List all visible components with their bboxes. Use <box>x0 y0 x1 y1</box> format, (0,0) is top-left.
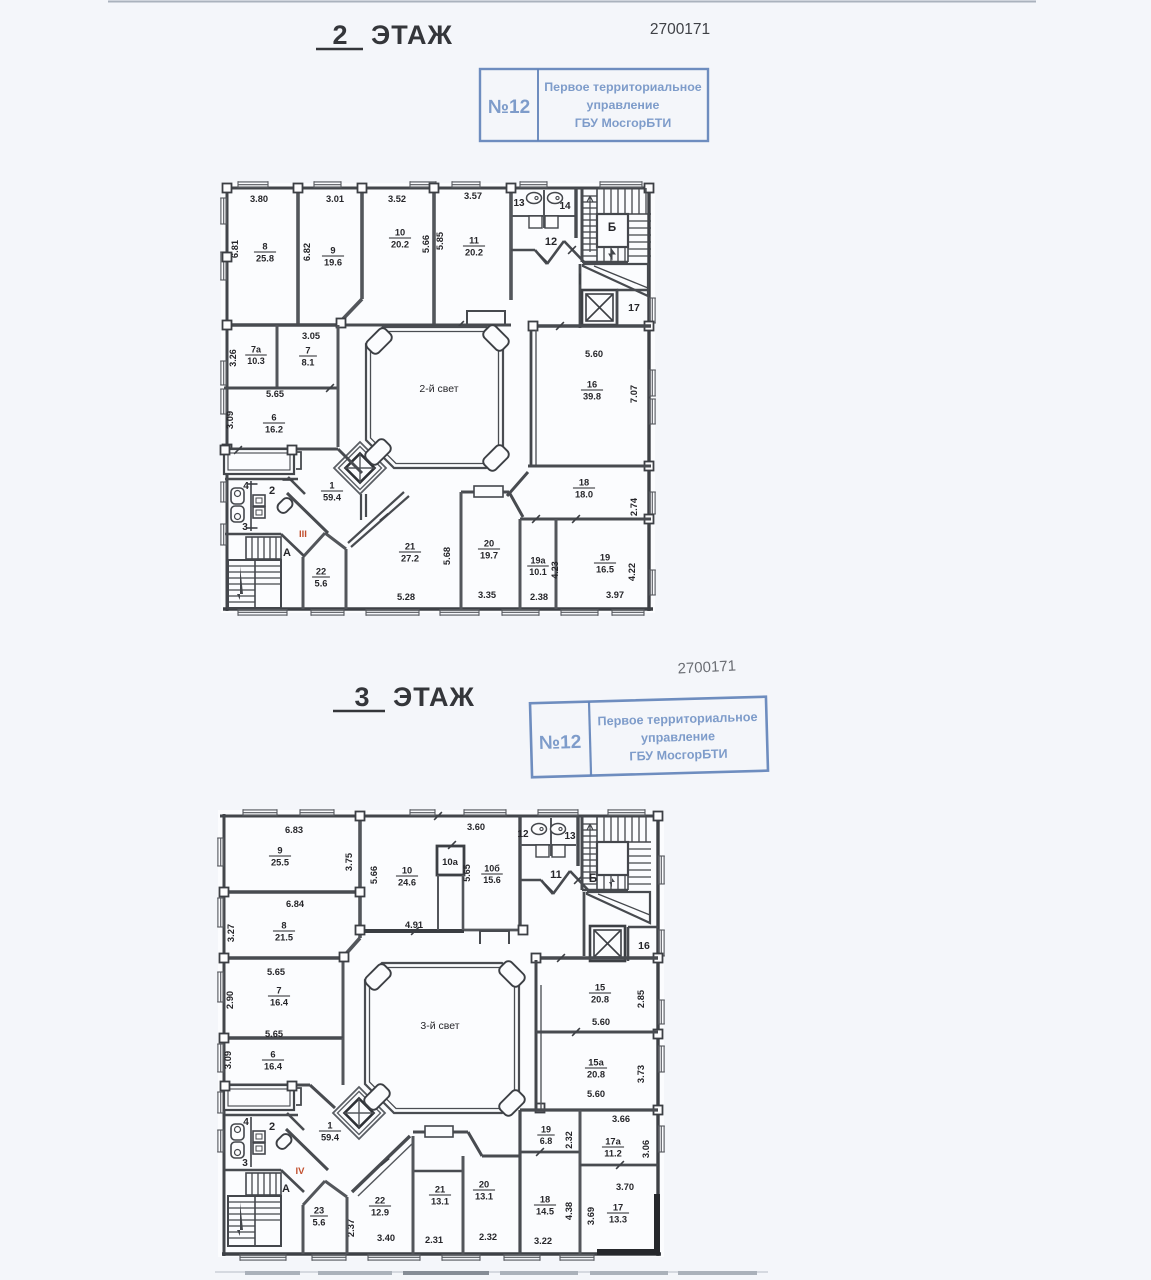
svg-text:5.85: 5.85 <box>435 232 445 250</box>
svg-text:2.32: 2.32 <box>564 1131 574 1149</box>
svg-text:16: 16 <box>638 940 650 952</box>
svg-text:7: 7 <box>305 346 310 356</box>
svg-text:13.3: 13.3 <box>609 1214 627 1224</box>
svg-text:19: 19 <box>541 1125 551 1135</box>
svg-text:9: 9 <box>277 846 282 856</box>
svg-text:3.69: 3.69 <box>586 1207 596 1225</box>
svg-text:4: 4 <box>243 1117 249 1128</box>
svg-text:2.38: 2.38 <box>530 592 548 602</box>
svg-text:1: 1 <box>327 1121 332 1131</box>
svg-text:№12: №12 <box>488 97 530 118</box>
svg-text:5.60: 5.60 <box>592 1017 610 1027</box>
svg-text:16.2: 16.2 <box>265 424 283 434</box>
svg-text:10.3: 10.3 <box>247 356 265 366</box>
svg-text:А: А <box>282 1183 290 1195</box>
svg-text:3.06: 3.06 <box>641 1140 651 1158</box>
svg-text:10б: 10б <box>484 864 500 874</box>
svg-text:5.65: 5.65 <box>462 864 472 882</box>
svg-text:7: 7 <box>276 986 281 996</box>
svg-text:20.8: 20.8 <box>587 1069 605 1079</box>
svg-text:ГБУ МосгорБТИ: ГБУ МосгорБТИ <box>629 747 728 764</box>
svg-text:2: 2 <box>269 485 275 497</box>
svg-text:3.40: 3.40 <box>377 1233 395 1243</box>
svg-text:20.2: 20.2 <box>391 239 409 249</box>
svg-text:5.60: 5.60 <box>585 349 603 359</box>
svg-text:3.80: 3.80 <box>250 194 268 204</box>
svg-text:16: 16 <box>587 380 597 390</box>
svg-text:6.83: 6.83 <box>285 825 303 835</box>
svg-text:2.32: 2.32 <box>479 1232 497 1242</box>
svg-text:22: 22 <box>375 1196 385 1206</box>
svg-text:59.4: 59.4 <box>321 1132 340 1142</box>
svg-text:ГБУ МосгорБТИ: ГБУ МосгорБТИ <box>575 116 672 130</box>
svg-text:5.65: 5.65 <box>265 1029 283 1039</box>
svg-text:2700171: 2700171 <box>650 21 710 38</box>
svg-text:25.5: 25.5 <box>271 857 289 867</box>
svg-text:23: 23 <box>314 1206 324 1216</box>
svg-text:2.31: 2.31 <box>425 1235 443 1245</box>
svg-text:18: 18 <box>579 478 589 488</box>
svg-text:13.1: 13.1 <box>431 1196 449 1206</box>
svg-text:3.57: 3.57 <box>464 191 482 201</box>
svg-text:ЭТАЖ: ЭТАЖ <box>393 682 475 712</box>
svg-text:13: 13 <box>513 198 525 209</box>
svg-text:59.4: 59.4 <box>323 492 342 502</box>
svg-text:Первое территориальное: Первое территориальное <box>544 80 702 94</box>
svg-text:3.01: 3.01 <box>326 194 344 204</box>
svg-text:18.0: 18.0 <box>575 489 593 499</box>
svg-text:2.85: 2.85 <box>636 990 646 1008</box>
svg-text:10: 10 <box>395 228 405 238</box>
svg-text:8: 8 <box>262 242 267 252</box>
svg-text:17а: 17а <box>605 1137 621 1147</box>
svg-text:8: 8 <box>281 921 286 931</box>
svg-text:5.65: 5.65 <box>266 389 284 399</box>
svg-text:27.2: 27.2 <box>401 553 419 563</box>
svg-text:39.8: 39.8 <box>583 391 601 401</box>
svg-text:2: 2 <box>332 20 347 50</box>
svg-text:5.68: 5.68 <box>442 547 452 565</box>
svg-text:5.60: 5.60 <box>587 1089 605 1099</box>
svg-text:2.90: 2.90 <box>225 991 235 1009</box>
svg-text:6: 6 <box>270 1050 275 1060</box>
svg-text:IV: IV <box>296 1166 306 1177</box>
svg-text:2700171: 2700171 <box>677 657 736 677</box>
svg-text:2: 2 <box>269 1121 275 1133</box>
svg-text:5.65: 5.65 <box>267 967 285 977</box>
svg-text:3.09: 3.09 <box>225 411 235 429</box>
svg-text:25.8: 25.8 <box>256 253 274 263</box>
svg-text:20: 20 <box>479 1180 489 1190</box>
svg-text:3: 3 <box>354 682 369 712</box>
svg-text:4.22: 4.22 <box>627 563 637 581</box>
svg-text:3.97: 3.97 <box>606 590 624 600</box>
svg-text:13: 13 <box>564 831 576 842</box>
svg-text:14: 14 <box>559 201 571 212</box>
svg-text:3.09: 3.09 <box>223 1051 233 1069</box>
svg-text:22: 22 <box>316 567 326 577</box>
svg-text:5.66: 5.66 <box>369 866 379 884</box>
svg-text:20.8: 20.8 <box>591 994 609 1004</box>
svg-text:14.5: 14.5 <box>536 1206 554 1216</box>
svg-text:17: 17 <box>628 302 640 314</box>
svg-text:10: 10 <box>402 866 412 876</box>
svg-text:1: 1 <box>329 481 334 491</box>
svg-text:III: III <box>299 529 307 540</box>
svg-text:4.23: 4.23 <box>550 561 560 579</box>
svg-text:15.6: 15.6 <box>483 875 501 885</box>
svg-text:15: 15 <box>595 983 605 993</box>
svg-text:12: 12 <box>517 829 529 840</box>
svg-text:17: 17 <box>613 1203 623 1213</box>
svg-text:5.28: 5.28 <box>397 592 415 602</box>
svg-text:4.91: 4.91 <box>405 920 423 930</box>
svg-text:12.9: 12.9 <box>371 1207 389 1217</box>
svg-text:8.1: 8.1 <box>302 357 315 367</box>
svg-text:3.22: 3.22 <box>534 1236 552 1246</box>
svg-text:12: 12 <box>545 236 557 248</box>
svg-text:21: 21 <box>405 542 415 552</box>
svg-text:16.4: 16.4 <box>264 1061 283 1071</box>
svg-text:6.84: 6.84 <box>286 899 305 909</box>
svg-text:21: 21 <box>435 1185 445 1195</box>
svg-text:7а: 7а <box>251 345 262 355</box>
svg-text:3.27: 3.27 <box>226 924 236 942</box>
svg-text:3.70: 3.70 <box>616 1182 634 1192</box>
svg-text:2-й свет: 2-й свет <box>419 383 458 395</box>
svg-text:19: 19 <box>600 553 610 563</box>
svg-text:5.6: 5.6 <box>315 578 328 588</box>
svg-text:6: 6 <box>271 413 276 423</box>
svg-text:19.7: 19.7 <box>480 550 498 560</box>
svg-text:№12: №12 <box>539 732 582 754</box>
svg-text:3: 3 <box>242 1158 248 1169</box>
svg-text:4: 4 <box>243 481 249 492</box>
svg-text:18: 18 <box>540 1195 550 1205</box>
svg-text:11: 11 <box>469 236 479 246</box>
svg-text:21.5: 21.5 <box>275 932 293 942</box>
svg-text:15а: 15а <box>588 1058 604 1068</box>
svg-text:3.52: 3.52 <box>388 194 406 204</box>
svg-text:3.73: 3.73 <box>636 1065 646 1083</box>
svg-text:5.66: 5.66 <box>421 235 431 253</box>
svg-text:11.2: 11.2 <box>604 1148 622 1158</box>
svg-text:5.6: 5.6 <box>313 1217 326 1227</box>
svg-text:3.75: 3.75 <box>344 853 354 871</box>
svg-text:3.60: 3.60 <box>467 822 485 832</box>
svg-text:11: 11 <box>550 869 562 881</box>
svg-text:ЭТАЖ: ЭТАЖ <box>371 20 453 50</box>
svg-text:управление: управление <box>587 98 660 112</box>
svg-text:3-й свет: 3-й свет <box>420 1020 459 1032</box>
svg-text:10а: 10а <box>442 857 459 868</box>
svg-text:4.38: 4.38 <box>564 1202 574 1220</box>
svg-text:3.26: 3.26 <box>228 349 238 367</box>
svg-text:19.6: 19.6 <box>324 257 342 267</box>
svg-text:Б: Б <box>589 873 597 885</box>
svg-text:А: А <box>283 547 291 559</box>
svg-text:9: 9 <box>330 246 335 256</box>
svg-text:10.1: 10.1 <box>529 567 547 577</box>
svg-text:управление: управление <box>641 729 715 745</box>
svg-text:6.8: 6.8 <box>540 1136 553 1146</box>
svg-text:19а: 19а <box>530 556 546 566</box>
svg-text:13.1: 13.1 <box>475 1191 493 1201</box>
svg-text:20: 20 <box>484 539 494 549</box>
svg-text:Б: Б <box>608 222 616 234</box>
svg-text:16.4: 16.4 <box>270 997 289 1007</box>
svg-text:7.07: 7.07 <box>629 385 639 403</box>
svg-text:3.35: 3.35 <box>478 590 496 600</box>
svg-text:2.74: 2.74 <box>629 497 639 516</box>
svg-text:6.82: 6.82 <box>302 243 312 261</box>
svg-text:16.5: 16.5 <box>596 564 614 574</box>
svg-text:3.05: 3.05 <box>302 331 320 341</box>
svg-text:3.66: 3.66 <box>612 1114 630 1124</box>
svg-text:24.6: 24.6 <box>398 877 416 887</box>
svg-text:20.2: 20.2 <box>465 247 483 257</box>
